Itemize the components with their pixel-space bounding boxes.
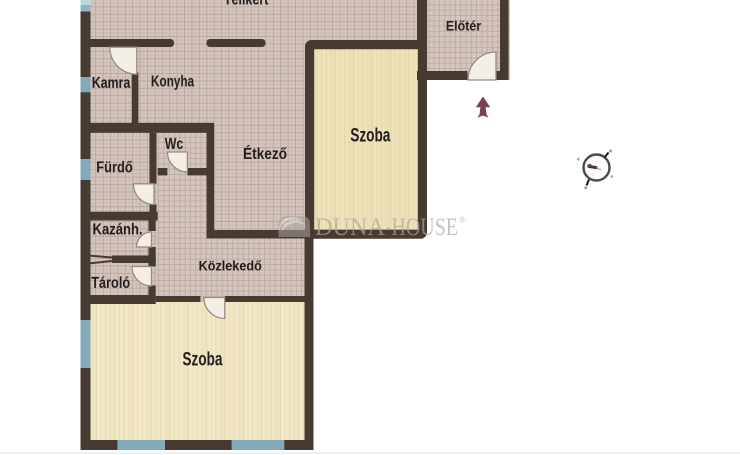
svg-text:Szoba: Szoba [182, 350, 222, 371]
svg-text:Szoba: Szoba [350, 125, 390, 146]
svg-text:Fürdő: Fürdő [96, 160, 132, 177]
svg-text:HOUSE: HOUSE [391, 214, 458, 241]
svg-text:Tároló: Tároló [91, 275, 130, 292]
svg-text:DUNA: DUNA [315, 214, 385, 241]
svg-text:Előtér: Előtér [446, 19, 482, 34]
svg-text:Kamra: Kamra [92, 75, 131, 92]
svg-text:®: ® [459, 215, 466, 225]
svg-text:Kazánh.: Kazánh. [93, 221, 143, 238]
svg-text:Konyha: Konyha [151, 74, 194, 91]
svg-text:Közlekedő: Közlekedő [199, 257, 262, 273]
svg-text:Étkező: Étkező [243, 146, 287, 163]
svg-text:Télikert: Télikert [224, 0, 269, 8]
svg-text:Wc: Wc [165, 136, 184, 153]
